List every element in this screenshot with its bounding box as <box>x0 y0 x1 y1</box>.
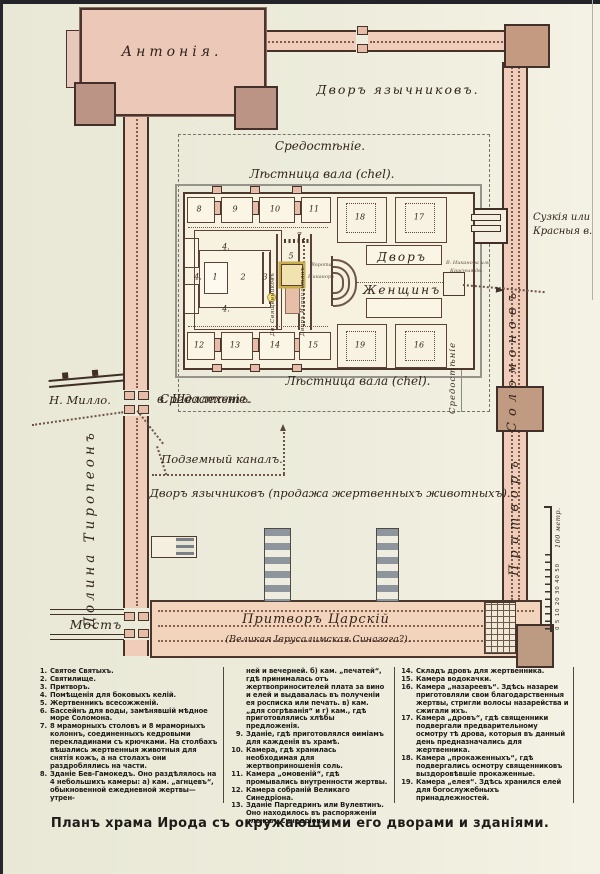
northeast-corner-tower <box>504 24 550 68</box>
freestanding-pillar <box>376 528 399 602</box>
millo-tooth <box>62 372 69 379</box>
colonnade-dots <box>188 326 328 327</box>
millo-label: Н. Милло. <box>49 393 111 407</box>
legend-item-text: Зданіе Бев-Гамокедъ. Оно раздѣлялось на … <box>50 771 219 803</box>
chamber-gate-mark <box>250 364 260 372</box>
north-wall-west <box>262 30 356 52</box>
north-wall-east <box>368 30 508 52</box>
bridge-gate-mark <box>124 629 135 638</box>
legend-item-number: 16. <box>399 684 413 716</box>
legend-column-3: 14.Складъ дровъ для жертвенника.15.Камер… <box>399 668 569 802</box>
legend-item-text: Камера „прокаженныхъ“, гдѣ подвергались … <box>416 755 569 779</box>
shushan-gate-label: Сузкія или <box>533 212 590 223</box>
priests-court-label: Дв. Священниковъ <box>270 273 276 336</box>
underground-canal-label: Подземный каналъ. <box>161 452 283 466</box>
chamber-11 <box>301 197 331 223</box>
east-wall-tower <box>496 386 544 432</box>
shushan-gate-bar <box>471 214 501 221</box>
legend-item-text: Камера „елея“. Здѣсь хранился елей для б… <box>416 779 569 803</box>
legend-item: 11.Камера „омовеній“, гдѣ промывались вн… <box>229 771 389 787</box>
wall-dots <box>136 418 138 606</box>
priests-court-wall <box>276 234 278 330</box>
chamber-10 <box>259 197 295 223</box>
scan-edge-right <box>592 0 593 300</box>
legend-item: ней и вечерней. б) кам. „печатей“, гдѣ п… <box>229 668 389 731</box>
legend-item-number: 6. <box>33 708 47 724</box>
plan-caption: Планъ храма Ирода съ окружающими его дво… <box>51 816 549 831</box>
solomon-porch-label2: Притворъ <box>507 455 522 576</box>
millo-dotted-path <box>32 411 123 426</box>
chel-top-label: Лѣстница вала (chel). <box>250 167 395 181</box>
antonia-label: Антонія. <box>122 44 223 60</box>
legend-item-number: 7. <box>33 723 47 770</box>
canal-dots <box>152 474 285 476</box>
legend-item-number: 9. <box>229 731 243 747</box>
legend-item-number: 10. <box>229 747 243 771</box>
legend-item-text: Камера „омовеній“, гдѣ промывались внутр… <box>246 771 389 787</box>
shushan-gate-label: Красныя в. <box>533 226 592 237</box>
chamber-13 <box>221 332 253 360</box>
legend-column-1: 1.Святое Святыхъ.2.Святилище.3.Притворъ.… <box>33 668 219 802</box>
legend-item-text: Камера „дровъ“, гдѣ священники подвергал… <box>416 715 569 755</box>
west-wall-foot <box>123 640 149 656</box>
legend-item: 16.Камера „назареевъ“. Здѣсь назареи при… <box>399 684 569 716</box>
legend-item: 8.Зданіе Бев-Гамокедъ. Оно раздѣлялось н… <box>33 771 219 803</box>
legend-item-number: 17. <box>399 715 413 755</box>
west-wall-lower <box>123 416 149 608</box>
bridge-gate-mark <box>138 612 149 621</box>
legend-column-2: ней и вечерней. б) кам. „печатей“, гдѣ п… <box>229 668 389 826</box>
chel-bottom-label: Лѣстница вала (chel). <box>286 374 431 388</box>
scan-edge-left <box>0 0 3 874</box>
chamber-12 <box>187 332 215 360</box>
legend-divider <box>223 667 224 803</box>
shellechet-gate-mark <box>124 391 135 400</box>
porch-corner-block <box>484 602 516 654</box>
legend-divider <box>573 667 574 803</box>
canal-dots <box>283 432 285 474</box>
nicanor-gate-label: Ворота <box>311 262 332 268</box>
legend-item: 10.Камера, гдѣ хранилась необходимая для… <box>229 747 389 771</box>
womens-court-structure <box>366 298 442 318</box>
legend-item-text: Камера „назареевъ“. Здѣсь назареи пригот… <box>416 684 569 716</box>
canal-arrow <box>280 424 286 431</box>
bridge-span <box>50 634 124 640</box>
scale-bar: 0 5 10 20 30 40 50 100 метр. <box>540 502 576 634</box>
scale-line <box>550 506 552 632</box>
scan-edge-top <box>0 0 600 4</box>
solomon-porch-label: Соломоновъ <box>505 287 520 432</box>
court-gentiles-top-label: Дворъ язычниковъ. <box>316 82 479 97</box>
royal-porch-label: Притворъ Царскій <box>242 612 390 627</box>
legend-item-text: Камера собраній Великаго Синедріона. <box>246 787 389 803</box>
womens-court-label: Женщинъ <box>363 283 441 297</box>
legend-item-number: 8. <box>33 771 47 803</box>
sredostenie-right-label: Средостѣніе <box>448 342 458 414</box>
shellechet-label: в. Шеллехетъ. <box>157 392 252 406</box>
legend-item-number: 11. <box>229 771 243 787</box>
millo-tooth <box>92 370 99 377</box>
temple-plan-page: Антонія. <box>0 0 600 874</box>
legend-item-text: Камера, гдѣ хранилась необходимая для же… <box>246 747 389 771</box>
legend-item: 18.Камера „прокаженныхъ“, гдѣ подвергали… <box>399 755 569 779</box>
antonia-tower-right <box>234 86 278 130</box>
beautiful-gate-label: В. Никанора или <box>446 260 490 266</box>
chamber-gate-mark <box>292 186 302 194</box>
chamber-17 <box>405 203 435 233</box>
chamber-14 <box>259 332 295 360</box>
legend-divider <box>394 667 395 803</box>
scale-tick <box>544 506 551 508</box>
chamber-gate-mark <box>292 364 302 372</box>
legend-item: 6.Бассейнъ для воды, замѣнявшій мѣдное м… <box>33 708 219 724</box>
court-gentiles-bottom-label: Дворъ язычниковъ (продажа жертвенныхъ жи… <box>150 486 511 500</box>
israel-corridor-wall <box>310 234 312 330</box>
holy-of-holies <box>204 262 228 294</box>
west-wall-upper <box>123 110 149 390</box>
chamber-18 <box>346 203 376 233</box>
shellechet-gate-mark <box>138 391 149 400</box>
legend-item-text: Бассейнъ для воды, замѣнявшій мѣдное мор… <box>50 708 219 724</box>
chamber-19 <box>346 331 376 361</box>
colonnade-dots <box>188 227 328 228</box>
porch-wall <box>262 252 264 304</box>
freestanding-pillar <box>264 528 291 602</box>
wall-dots <box>370 41 506 43</box>
legend-item-number: 19. <box>399 779 413 803</box>
altar-ramp <box>285 287 300 314</box>
beautiful-gate-label: Красныя дв. <box>450 268 483 274</box>
nicanor-gate-label: Никанора <box>308 274 334 280</box>
wall-dots <box>136 112 138 388</box>
shushan-gate-bar <box>471 225 501 232</box>
legend-item-text: 8 мраморныхъ столовъ и 8 мраморныхъ коло… <box>50 723 219 770</box>
legend-item-number <box>229 668 243 731</box>
legend-item-text: ней и вечерней. б) кам. „печатей“, гдѣ п… <box>246 668 389 731</box>
legend-item: 19.Камера „елея“. Здѣсь хранился елей дл… <box>399 779 569 803</box>
chamber-gate-mark <box>212 186 222 194</box>
north-gate-mark <box>357 26 368 35</box>
tyropoeon-valley-label: Долина Тиропеонъ <box>82 429 98 628</box>
sredostenie-top-label: Средостѣніе. <box>275 139 365 153</box>
chamber-9 <box>221 197 253 223</box>
chamber-15 <box>299 332 331 360</box>
shellechet-gate-mark <box>124 405 135 414</box>
beautiful-gate <box>443 272 465 296</box>
bridge-gate-mark <box>124 612 135 621</box>
legend-item: 17.Камера „дровъ“, гдѣ священники подвер… <box>399 715 569 755</box>
royal-porch-sub-label: (Великая Іерусалимская Синагога?). <box>225 634 410 645</box>
scale-ticks <box>545 554 550 630</box>
scale-numbers: 0 5 10 20 30 40 50 <box>555 563 561 630</box>
north-gate-mark <box>357 44 368 53</box>
chamber-gate-mark <box>250 186 260 194</box>
womens-court-label: Дворъ <box>377 250 427 264</box>
israelites-court-label: Дворъ Израильтянъ <box>300 267 306 336</box>
antonia-tower-left <box>74 82 116 126</box>
legend-item-text: Зданіе, гдѣ приготовлялся ѳиміамъ для ка… <box>246 731 389 747</box>
direction-arrow <box>496 287 504 294</box>
chamber-8 <box>187 197 215 223</box>
scale-unit-label: 100 метр. <box>554 507 562 548</box>
marble-tables <box>284 239 310 243</box>
legend-item: 7.8 мраморныхъ столовъ и 8 мраморныхъ ко… <box>33 723 219 770</box>
side-structure-block <box>176 537 194 555</box>
legend-item: 12.Камера собраній Великаго Синедріона. <box>229 787 389 803</box>
millo-structure <box>48 367 125 390</box>
legend-item: 9.Зданіе, гдѣ приготовлялся ѳиміамъ для … <box>229 731 389 747</box>
chamber-16 <box>405 331 435 361</box>
legend-item-number: 18. <box>399 755 413 779</box>
legend-item-number: 12. <box>229 787 243 803</box>
bridge-gate-mark <box>138 629 149 638</box>
wall-dots <box>264 41 354 43</box>
chamber-gate-mark <box>212 364 222 372</box>
bridge-label: Мостъ <box>70 617 123 632</box>
